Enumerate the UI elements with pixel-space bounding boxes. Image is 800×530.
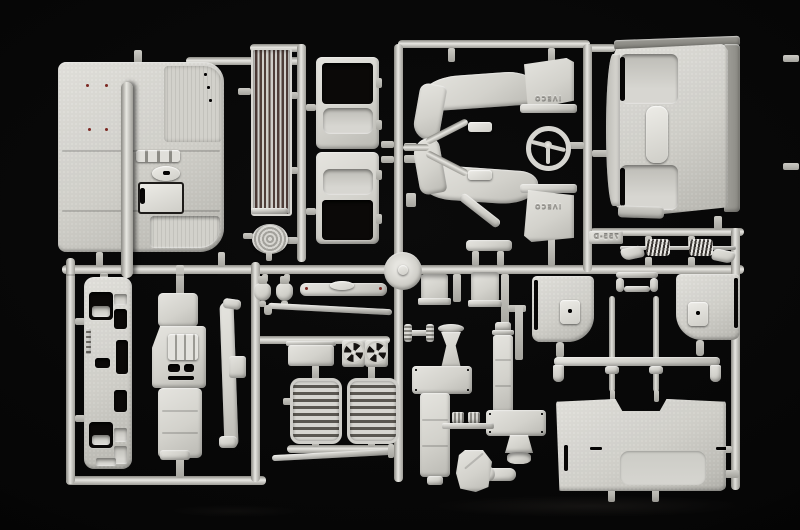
recess-inner [92,306,110,317]
trim-slot [734,278,738,328]
door-lower-recess [323,108,373,134]
fan-hub [374,350,379,355]
rivet [541,431,543,433]
sprue-runner [398,40,590,48]
pin-tip [654,390,659,402]
cab-rear-lower-panel [556,399,726,491]
sprue-stub [266,252,272,261]
cab-door-lower [316,152,379,244]
sprue-photo: IVECO IVECO 755-D [0,0,800,530]
expansion-tank [456,450,492,492]
stack-seam [495,385,511,387]
rivet [415,369,417,371]
battery-box [288,345,334,366]
pillar-bump [229,356,246,378]
sprue-stub [306,208,316,215]
long-pin [653,296,659,392]
louver-vent-panel-left [290,378,342,444]
grille-side-cell [114,294,127,305]
exhaust-stack [493,335,513,413]
mudflap-iveco-text-lower: IVECO [534,202,561,210]
recess-inner [92,435,110,445]
intake-funnel-body [438,332,464,368]
long-pin [609,296,615,392]
radiator-grille [251,48,292,216]
silencer-box-left [412,366,472,394]
sprue-stub [515,305,523,360]
hub-cover-disc [384,252,422,290]
paint-dot [105,128,108,131]
rivet [467,369,469,371]
paint-dot [88,128,91,131]
dash-switch [168,364,180,372]
duct-seam [422,419,448,421]
sprue-tag-text: 755-D [593,233,619,241]
entry-step-bar [300,283,387,296]
floor-pinhole [207,86,210,89]
dashboard-step [160,450,190,460]
sprue-runner [66,258,75,484]
trim-pin [696,340,704,356]
engine-hatch-slot [140,188,145,204]
door-upper-recess [323,169,373,195]
exhaust-funnel [505,435,533,453]
small-box-left [421,274,448,300]
sprue-id-tag: 755-D [589,231,623,244]
headlamp-recess-top [89,292,113,320]
paint-dot [305,287,308,290]
sprue-stub [714,216,722,230]
ribbed-block [468,412,480,423]
door-window-cutout [322,200,373,240]
hub-cone [398,265,408,275]
trim-strip-hook [388,444,394,458]
crank-hole [568,309,572,313]
pin-collar [605,366,619,374]
pin-collar [649,366,663,374]
louver-vent-panel-right [347,378,399,444]
sprue-stub [548,238,555,266]
floor-oval-slot [163,171,170,175]
mudflap-iveco-text-upper: IVECO [534,94,561,102]
surface-smudge [430,495,750,517]
fan-hub [351,350,356,355]
surface-smudge [170,505,300,517]
floor-switch-row [136,150,180,162]
door-hinge [376,78,382,88]
stack-seam [495,359,511,361]
coil-spring-right [689,239,713,256]
panel-texture [676,274,740,340]
rivet [489,431,491,433]
instrument-cluster [168,334,198,360]
duct-end-cap [427,476,443,485]
sprue-stub [472,251,479,266]
sprue-stub [783,55,799,62]
cab-door-upper [316,57,379,149]
floor-hatch-texture [150,216,220,248]
small-box-right [471,272,499,302]
mud-flap-upper-lip [520,104,577,113]
air-horn-left-neck [258,276,267,284]
dashboard-top-block [158,293,198,327]
panel-slot [564,445,568,471]
panel-seam [66,274,218,276]
sprue-stub [406,193,416,207]
rivet [489,413,491,415]
crank-hole [696,311,700,315]
cab-rear-left-bulge [606,54,620,206]
step-dome [330,281,354,290]
coil-spring-left [646,239,670,256]
grille-side-cell [114,428,127,442]
roof-bar-foot [553,365,564,382]
cooling-fan-left [344,343,363,362]
air-horn-left [254,283,271,301]
door-window-cutout [322,63,373,104]
wiper-pivot [264,305,272,315]
rivet [415,389,417,391]
runner-over-floor-panel [121,82,133,278]
torsion-rail-leg [616,278,624,292]
duct-seam [422,445,448,447]
torsion-rail-leg [650,278,658,292]
rivet [541,413,543,415]
sprue-branch [403,144,429,151]
roof-bar [554,357,720,366]
filler-cap [252,224,288,254]
sprue-stub [96,252,103,267]
steering-hub [544,141,552,149]
grille-bottom-tab [96,458,116,466]
intake-duct [420,393,450,477]
air-horn-right [276,283,293,301]
rivet [467,389,469,391]
mud-flap-lower: IVECO [524,190,574,242]
cab-rear-lower-recess [620,165,678,210]
door-hinge [376,170,382,180]
sprue-stub [381,141,394,148]
sprue-stub [497,251,504,266]
door-trim-panel-right [676,274,740,340]
cab-rear-upper-recess [620,54,678,104]
t-valve-end [426,324,434,342]
floor-pinhole [209,99,212,102]
ribbed-block [452,412,464,423]
torsion-rail-top [616,272,658,278]
cab-rear-handle [646,106,668,163]
panel-mark [590,447,602,450]
sprue-stub [645,257,652,267]
paint-dot [86,84,89,87]
radiator-bottom-bar [251,208,288,214]
panel-recess-outline [620,451,706,485]
paint-dot [379,287,382,290]
door-trim-panel-left [532,276,594,342]
wiper-arm [268,303,392,315]
sprue-stub [725,470,739,478]
cab-rear-lower-slot [620,168,625,206]
dashboard-lower-block [158,388,202,458]
dashboard-mid-block [152,326,206,388]
door-hinge [376,214,382,224]
torsion-rail-mid [624,286,650,292]
sprue-stub [783,163,799,170]
t-valve-end [404,324,412,342]
floor-hatch-texture [164,66,222,142]
arch-detail-plate [468,122,492,132]
sprue-stub [218,252,225,267]
door-hinge [376,120,382,130]
grille-side-slot [114,309,127,329]
sprue-stub [176,265,184,295]
grille-side-slot [114,390,127,412]
sprue-stub [448,48,455,62]
arch-detail-plate [468,170,492,180]
grille-side-slot [116,340,128,374]
sprue-runner [66,476,266,485]
sprue-stub [453,274,461,302]
roof-bar-foot [710,365,721,382]
small-box-right-lip [468,300,502,307]
tank-facet [464,453,484,470]
step-bracket-foot [466,240,512,251]
headlamp-recess-bottom [89,422,113,448]
sprue-stub [238,88,251,95]
mud-flap-upper: IVECO [524,58,574,110]
dash-seam [162,432,198,434]
floor-pinhole [204,73,207,76]
sprue-stub [381,156,394,163]
sprue-stub [243,233,253,239]
cooling-fan-right [367,343,386,362]
silencer-box-right [486,410,546,436]
pillar-foot [219,436,237,448]
dash-vent [168,376,194,380]
intake-funnel-rim [438,324,464,333]
trim-pin [556,342,564,358]
small-box-left-lip [418,298,451,305]
trim-slot [534,280,538,330]
exhaust-cup [507,452,531,464]
sprue-runner [731,228,740,490]
cab-rear-upper-slot [620,57,625,101]
cab-rear-foot [618,205,664,219]
air-horn-right-neck [280,276,289,284]
grille-louvers [86,328,91,354]
sprue-runner [297,44,306,262]
paint-dot [105,84,108,87]
sprue-stub [688,257,695,267]
grille-centre-slot [95,358,110,368]
exhaust-cap [495,322,511,330]
dash-seam [162,410,198,412]
ledge-rail [442,423,494,429]
dash-switch [184,364,194,372]
sprue-stub [306,104,316,111]
